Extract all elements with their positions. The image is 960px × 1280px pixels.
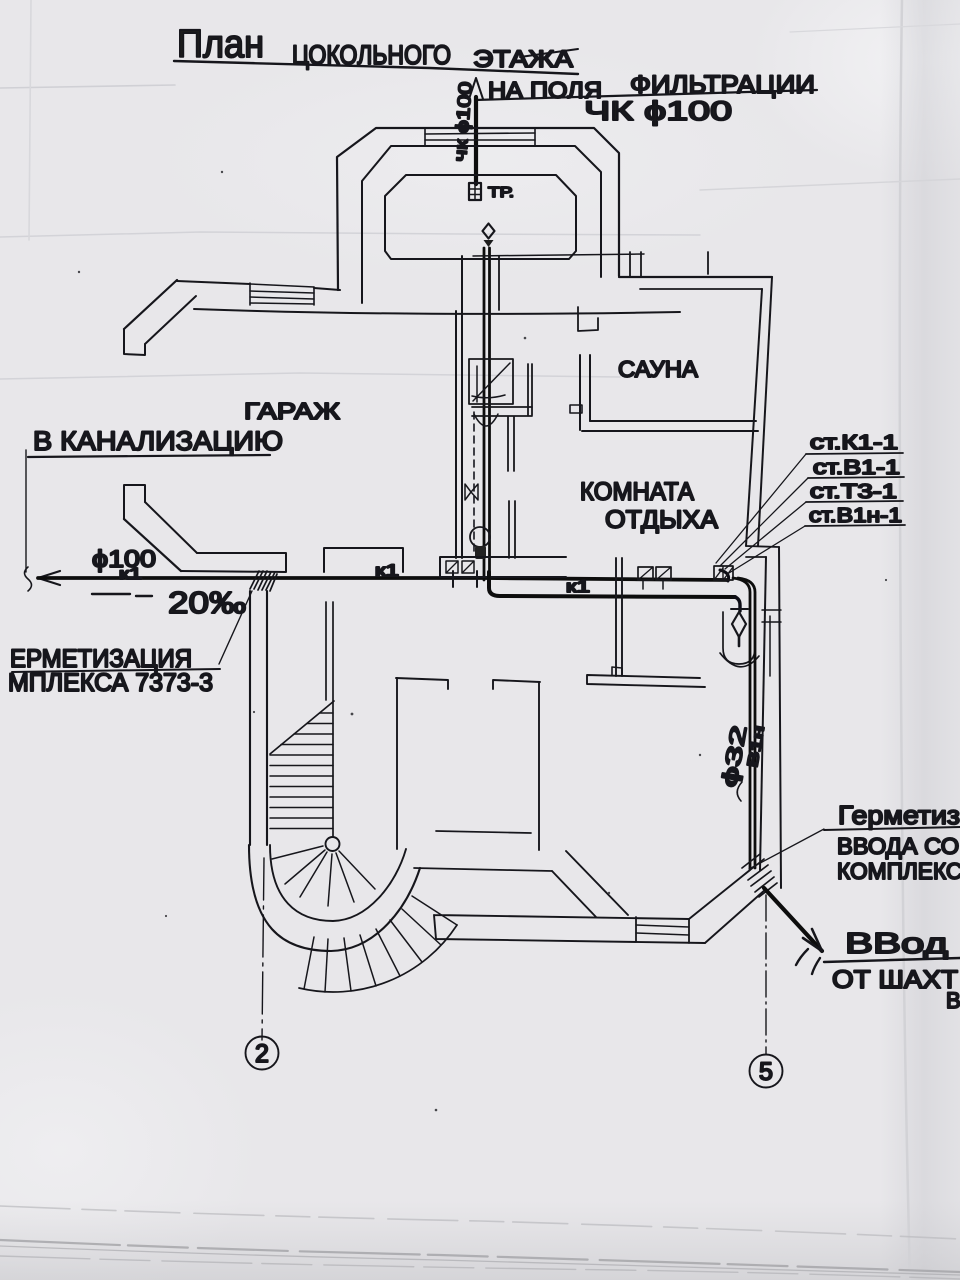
svg-text:ст.В1н-1: ст.В1н-1 xyxy=(809,505,902,527)
svg-text:ВВОДА СОГ: ВВОДА СОГ xyxy=(837,833,960,859)
svg-text:к1: к1 xyxy=(566,577,590,596)
svg-text:ст.К1-1: ст.К1-1 xyxy=(810,432,898,454)
svg-text:ОТДЫХА: ОТДЫХА xyxy=(605,506,718,534)
svg-text:ст.В1-1: ст.В1-1 xyxy=(813,457,900,479)
svg-text:МПЛЕКСА 7373-3: МПЛЕКСА 7373-3 xyxy=(8,669,213,697)
svg-text:5: 5 xyxy=(759,1058,773,1086)
svg-text:Герметиз: Герметиз xyxy=(838,800,960,830)
svg-text:КОМПЛЕКСА: КОМПЛЕКСА xyxy=(837,858,960,884)
svg-text:ЭТАЖА: ЭТАЖА xyxy=(473,46,573,73)
svg-text:КОМНАТА: КОМНАТА xyxy=(580,478,694,506)
svg-text:2: 2 xyxy=(255,1040,269,1068)
svg-text:В КАНАЛИЗАЦИЮ: В КАНАЛИЗАЦИЮ xyxy=(33,426,283,456)
svg-text:ст.Т3-1: ст.Т3-1 xyxy=(810,481,897,503)
svg-text:В: В xyxy=(946,988,960,1013)
svg-text:20‰: 20‰ xyxy=(168,585,246,620)
svg-text:План: План xyxy=(177,23,264,66)
svg-text:ВВод: ВВод xyxy=(845,928,948,960)
svg-text:к1: к1 xyxy=(375,561,399,580)
svg-text:ЧК ϕ100: ЧК ϕ100 xyxy=(584,96,732,126)
svg-text:ТР.: ТР. xyxy=(488,184,514,201)
svg-text:к1: к1 xyxy=(119,566,142,583)
svg-text:ОТ ШАХТ: ОТ ШАХТ xyxy=(832,966,958,994)
svg-text:САУНА: САУНА xyxy=(618,356,699,382)
svg-text:ГАРАЖ: ГАРАЖ xyxy=(244,398,340,424)
